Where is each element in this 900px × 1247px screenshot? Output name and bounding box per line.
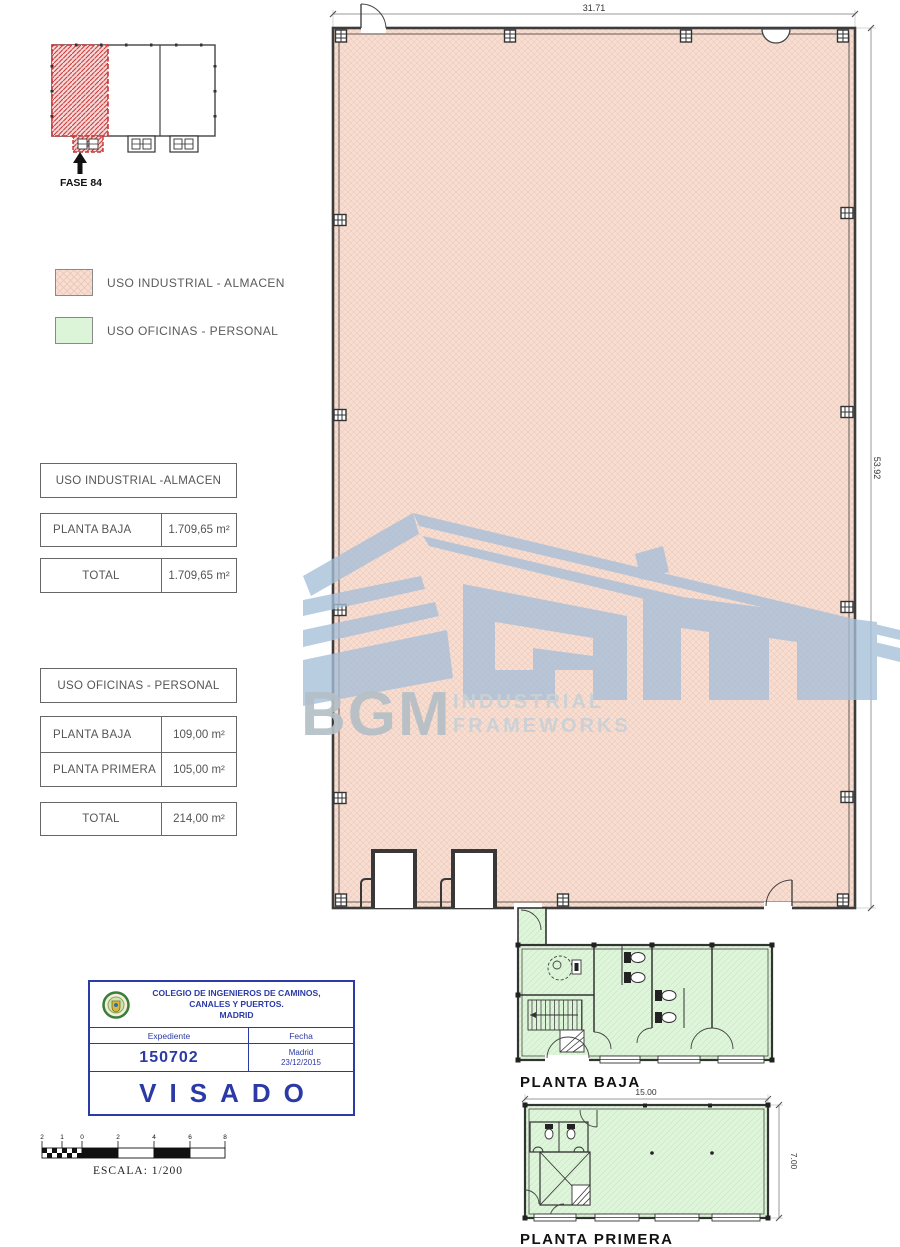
fase-84-highlight	[52, 45, 108, 136]
industrial-swatch	[55, 269, 93, 296]
scale-tick: 2	[40, 1134, 44, 1141]
fecha-date: 23/12/2015	[281, 1058, 321, 1068]
stamp-org-line: CANALES Y PUERTOS.	[130, 999, 343, 1010]
industrial-table-header: USO INDUSTRIAL -ALMACEN	[40, 463, 237, 498]
total-value: 1.709,65 m²	[161, 559, 236, 592]
scale-tick: 1	[60, 1134, 64, 1141]
planta-primera-plan: 15.00 7.00	[520, 1087, 799, 1247]
scale-tick: 4	[152, 1134, 156, 1141]
stamp-field-values: 150702 Madrid 23/12/2015	[90, 1044, 353, 1072]
oficinas-swatch	[55, 317, 93, 344]
total-label: TOTAL	[41, 803, 161, 835]
stamp-organization: COLEGIO DE INGENIEROS DE CAMINOS, CANALE…	[130, 988, 353, 1021]
fase-arrow-icon	[73, 152, 87, 174]
legend-item-oficinas: USO OFICINAS - PERSONAL	[55, 317, 278, 344]
fecha-city: Madrid	[289, 1048, 313, 1058]
window-segment	[600, 1056, 764, 1063]
row-label: PLANTA BAJA	[41, 717, 161, 752]
planta-primera-height-dimension: 7.00	[789, 1153, 799, 1170]
industrial-table-total: TOTAL 1.709,65 m²	[40, 558, 237, 593]
row-value: 1.709,65 m²	[161, 514, 236, 546]
legend-label: USO INDUSTRIAL - ALMACEN	[107, 276, 285, 290]
total-value: 214,00 m²	[161, 803, 236, 835]
visado-stamp: COLEGIO DE INGENIEROS DE CAMINOS, CANALE…	[88, 980, 355, 1116]
total-label: TOTAL	[41, 559, 161, 592]
row-label: PLANTA PRIMERA	[41, 753, 161, 787]
main-floor-plan: 31.71 53.92	[330, 3, 882, 912]
scale-tick: 2	[116, 1134, 120, 1141]
legend-item-industrial: USO INDUSTRIAL - ALMACEN	[55, 269, 285, 296]
watermark-line2: FRAMEWORKS	[453, 715, 631, 737]
planta-primera-width-dimension: 15.00	[635, 1087, 657, 1097]
row-value: 105,00 m²	[161, 753, 236, 787]
planta-primera-label: PLANTA PRIMERA	[520, 1231, 674, 1247]
watermark-word: BGM	[301, 680, 452, 749]
fecha-value: Madrid 23/12/2015	[249, 1044, 353, 1071]
oficinas-table-header: USO OFICINAS - PERSONAL	[40, 668, 237, 703]
drawing-sheet: FASE 84 31.71 53.92	[0, 0, 900, 1247]
main-width-dimension: 31.71	[583, 3, 606, 13]
fecha-label: Fecha	[249, 1028, 353, 1043]
row-value: 109,00 m²	[161, 717, 236, 752]
stamp-header: COLEGIO DE INGENIEROS DE CAMINOS, CANALE…	[90, 982, 353, 1028]
row-label: PLANTA BAJA	[41, 514, 161, 546]
visado-text: VISADO	[90, 1072, 353, 1114]
colegio-crest-icon	[102, 991, 130, 1019]
oficinas-table-rows: PLANTA BAJA 109,00 m² PLANTA PRIMERA 105…	[40, 716, 237, 787]
legend-label: USO OFICINAS - PERSONAL	[107, 324, 278, 338]
scale-bar: 2 1 0 2 4 6 8 ESCALA: 1/200	[40, 1134, 227, 1177]
expediente-value: 150702	[90, 1044, 249, 1071]
scale-label: ESCALA: 1/200	[93, 1165, 183, 1177]
scale-tick: 6	[188, 1134, 192, 1141]
expediente-label: Expediente	[90, 1028, 249, 1043]
stamp-org-line: COLEGIO DE INGENIEROS DE CAMINOS,	[130, 988, 343, 999]
stamp-field-labels: Expediente Fecha	[90, 1028, 353, 1044]
scale-tick: 8	[223, 1134, 227, 1141]
scale-tick: 0	[80, 1134, 84, 1141]
site-plan: FASE 84	[51, 44, 217, 190]
planta-baja-label: PLANTA BAJA	[520, 1074, 641, 1091]
fase-84-label: FASE 84	[60, 177, 102, 189]
industrial-table-row: PLANTA BAJA 1.709,65 m²	[40, 513, 237, 547]
planta-baja-plan: PLANTA BAJA	[516, 908, 775, 1091]
oficinas-table-total: TOTAL 214,00 m²	[40, 802, 237, 836]
stamp-org-line: MADRID	[130, 1010, 343, 1021]
main-height-dimension: 53.92	[872, 457, 882, 480]
watermark-line1: INDUSTRIAL	[453, 691, 604, 713]
